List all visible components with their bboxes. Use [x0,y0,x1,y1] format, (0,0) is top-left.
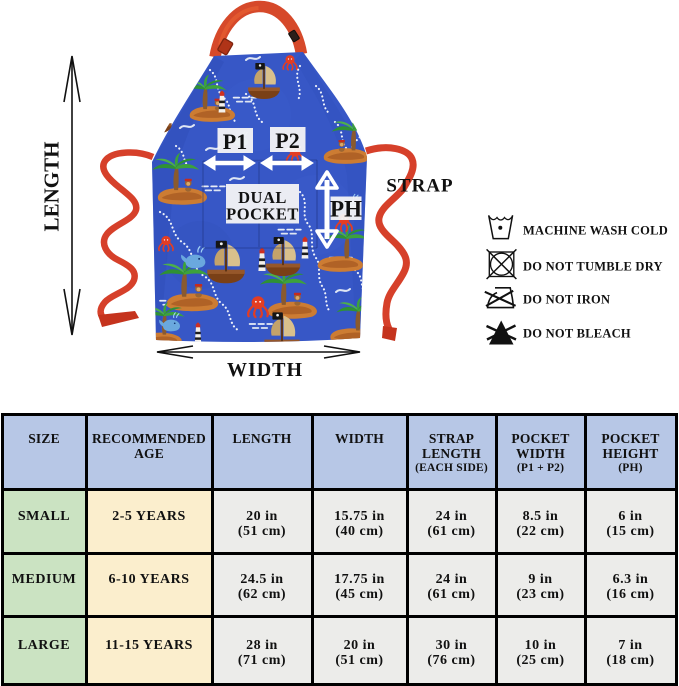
svg-text:P2: P2 [275,128,299,153]
svg-text:DO NOT TUMBLE DRY: DO NOT TUMBLE DRY [523,260,663,274]
svg-text:DO NOT BLEACH: DO NOT BLEACH [523,327,631,341]
svg-text:DO NOT IRON: DO NOT IRON [523,293,610,307]
svg-text:MACHINE WASH COLD: MACHINE WASH COLD [523,224,668,238]
svg-text:PH: PH [330,197,362,222]
svg-text:LENGTH: LENGTH [40,142,64,232]
svg-text:STRAP: STRAP [386,176,453,197]
svg-text:WIDTH: WIDTH [227,359,303,381]
svg-text:POCKET: POCKET [226,205,299,224]
svg-text:P1: P1 [223,129,247,154]
